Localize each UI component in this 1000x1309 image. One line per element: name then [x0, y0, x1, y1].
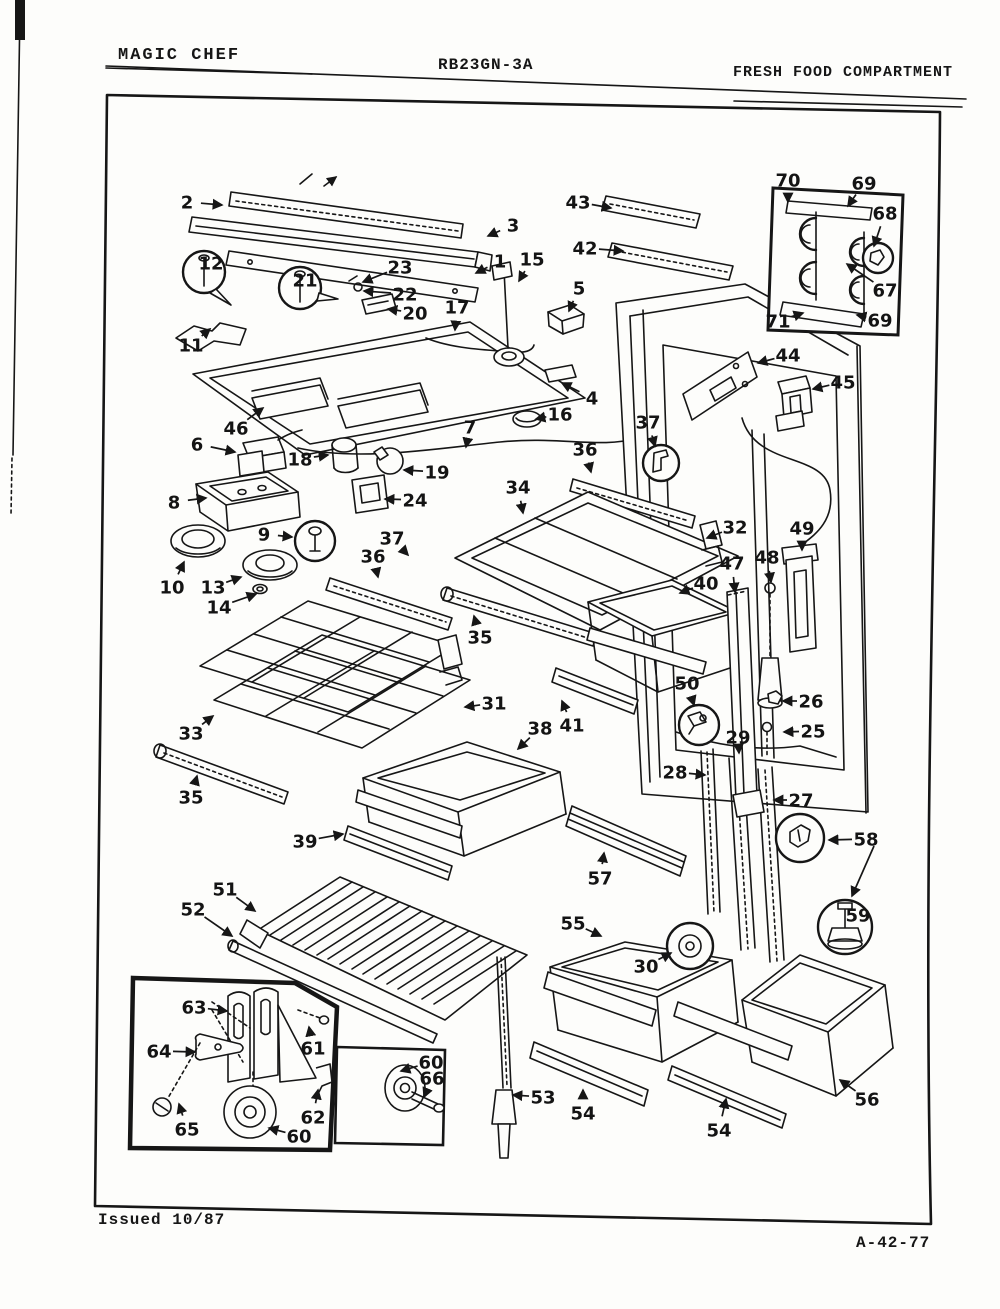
callout-24: 24	[402, 491, 427, 512]
leader-35	[195, 776, 197, 784]
leader-36	[589, 463, 591, 472]
leader-25	[784, 731, 799, 732]
leader-58	[829, 839, 852, 840]
callout-59: 59	[845, 906, 870, 927]
callout-64: 64	[146, 1042, 171, 1063]
callout-18: 18	[287, 450, 312, 471]
callout-44: 44	[775, 346, 800, 367]
leader-18	[314, 455, 328, 457]
callout-42: 42	[572, 239, 597, 260]
callout-21: 21	[292, 271, 317, 292]
callout-13: 13	[200, 578, 225, 599]
callout-36: 36	[360, 547, 385, 568]
leader-39	[319, 834, 343, 838]
leader-55	[586, 929, 601, 936]
callout-61: 61	[300, 1039, 325, 1060]
leader-41	[562, 701, 567, 712]
callout-48: 48	[754, 548, 779, 569]
leader-10	[178, 562, 184, 574]
leader-33	[202, 716, 213, 724]
callout-46: 46	[223, 419, 248, 440]
callout-54: 54	[570, 1104, 595, 1125]
leader-34	[521, 501, 523, 513]
callout-49: 49	[789, 519, 814, 540]
callout-51: 51	[212, 880, 237, 901]
leader-9	[278, 535, 292, 537]
callout-29: 29	[725, 728, 750, 749]
callout-10: 10	[159, 578, 184, 599]
manual-page: MAGIC CHEF RB23GN-3A FRESH FOOD COMPARTM…	[0, 0, 1000, 1309]
callout-62: 62	[300, 1108, 325, 1129]
leader-22	[364, 291, 391, 293]
leader-52	[205, 917, 232, 936]
leader-64	[173, 1051, 195, 1052]
callout-65: 65	[174, 1120, 199, 1141]
callout-17: 17	[444, 298, 469, 319]
callout-25: 25	[800, 722, 825, 743]
callout-37: 37	[379, 529, 404, 550]
scan-artifacts	[11, 0, 25, 515]
callout-69: 69	[851, 174, 876, 195]
callout-68: 68	[872, 204, 897, 225]
callout-56: 56	[854, 1090, 879, 1111]
part-button-and-covers	[171, 521, 335, 594]
leader-17	[455, 321, 456, 330]
callout-22: 22	[392, 285, 417, 306]
callout-30: 30	[633, 957, 658, 978]
callout-70: 70	[775, 171, 800, 192]
callout-34: 34	[505, 478, 530, 499]
leader-24	[385, 499, 401, 500]
callout-1: 1	[494, 252, 507, 273]
callout-52: 52	[180, 900, 205, 921]
callout-63: 63	[181, 998, 206, 1019]
callout-15: 15	[519, 250, 544, 271]
leader-35	[474, 616, 476, 624]
callout-27: 27	[788, 791, 813, 812]
callout-16: 16	[547, 405, 572, 426]
leader-31	[465, 705, 480, 707]
callout-66: 66	[419, 1069, 444, 1090]
callout-50: 50	[674, 674, 699, 695]
callout-69: 69	[867, 311, 892, 332]
leader-6	[211, 447, 235, 452]
header-rules	[106, 66, 966, 107]
leader-57	[602, 853, 604, 864]
callout-71: 71	[765, 312, 790, 333]
leader-53	[513, 1095, 529, 1096]
callout-38: 38	[527, 719, 552, 740]
leader-3	[488, 231, 500, 236]
callout-57: 57	[587, 869, 612, 890]
leader-13	[226, 577, 241, 582]
callout-23: 23	[387, 258, 412, 279]
callout-20: 20	[402, 304, 427, 325]
part-trim-57	[566, 806, 686, 876]
callout-12: 12	[198, 254, 223, 275]
callout-3: 3	[507, 216, 520, 237]
callout-47: 47	[719, 554, 744, 575]
callout-7: 7	[464, 418, 477, 439]
part-pan-38	[344, 742, 566, 880]
callout-11: 11	[178, 336, 203, 357]
callout-33: 33	[178, 724, 203, 745]
callout-19: 19	[424, 463, 449, 484]
callout-37: 37	[635, 413, 660, 434]
callout-53: 53	[530, 1088, 555, 1109]
callout-54: 54	[706, 1121, 731, 1142]
callout-60: 60	[286, 1127, 311, 1148]
callout-43: 43	[565, 193, 590, 214]
leader-51	[236, 897, 255, 911]
callout-67: 67	[872, 281, 897, 302]
leader-15	[519, 271, 525, 281]
leader-2	[201, 203, 222, 205]
callout-4: 4	[586, 389, 599, 410]
callout-14: 14	[206, 598, 231, 619]
callout-28: 28	[662, 763, 687, 784]
leader-36	[376, 570, 378, 577]
leader-20	[388, 309, 401, 311]
callout-8: 8	[168, 493, 181, 514]
callout-31: 31	[481, 694, 506, 715]
callout-58: 58	[853, 830, 878, 851]
callout-6: 6	[191, 435, 204, 456]
leader-8	[188, 498, 206, 500]
part-top-grille-rails	[189, 174, 492, 302]
part-rails-42-43	[602, 196, 733, 280]
callout-2: 2	[181, 193, 194, 214]
leader-19	[404, 470, 423, 471]
callout-5: 5	[573, 279, 586, 300]
callout-26: 26	[798, 692, 823, 713]
callout-9: 9	[258, 525, 271, 546]
callout-41: 41	[559, 716, 584, 737]
callout-45: 45	[830, 373, 855, 394]
callout-35: 35	[178, 788, 203, 809]
leader-14	[232, 594, 256, 602]
exploded-diagram: 1234567891011121314151617181920212223242…	[0, 0, 1000, 1309]
callout-55: 55	[560, 914, 585, 935]
callout-32: 32	[722, 518, 747, 539]
callout-40: 40	[693, 574, 718, 595]
callout-39: 39	[292, 832, 317, 853]
callout-35: 35	[467, 628, 492, 649]
callout-36: 36	[572, 440, 597, 461]
